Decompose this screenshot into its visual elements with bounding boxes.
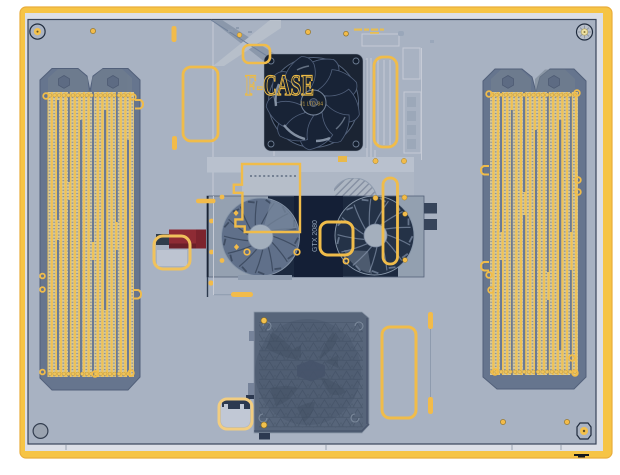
svg-text:J1 LTD-84: J1 LTD-84 xyxy=(300,102,323,108)
svg-text:GTX 2080: GTX 2080 xyxy=(312,220,319,252)
svg-text:F-CASE: F-CASE xyxy=(245,69,314,102)
